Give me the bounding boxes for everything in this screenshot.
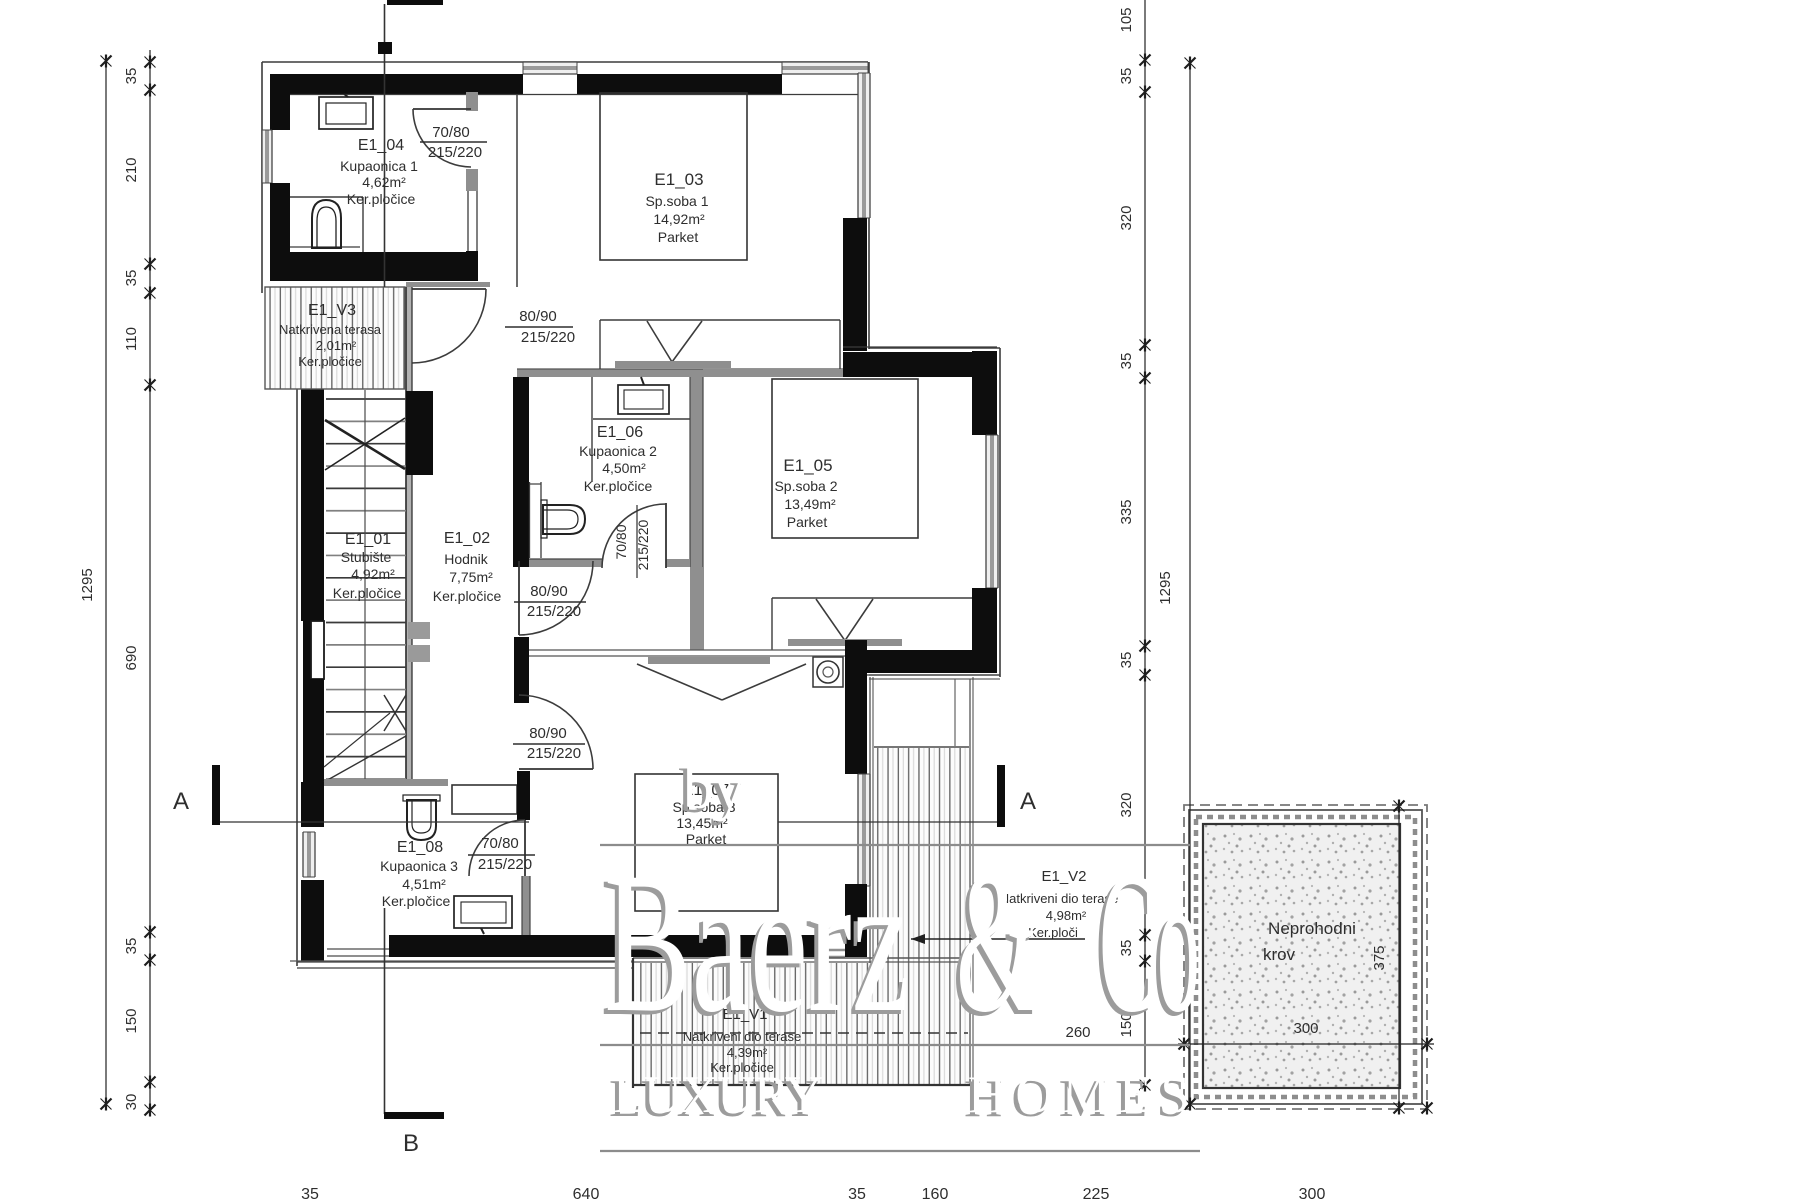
svg-text:E1_08: E1_08 [397, 839, 443, 856]
svg-text:215/220: 215/220 [478, 856, 532, 873]
svg-text:215/220: 215/220 [428, 144, 482, 161]
svg-text:A: A [1020, 788, 1036, 815]
svg-text:35: 35 [123, 270, 140, 287]
svg-text:215/220: 215/220 [635, 519, 651, 570]
svg-text:215/220: 215/220 [521, 329, 575, 346]
svg-text:35: 35 [123, 938, 140, 955]
svg-text:Ker.pločice: Ker.pločice [333, 585, 402, 601]
svg-text:215/220: 215/220 [527, 603, 581, 620]
svg-text:Stubište: Stubište [341, 549, 392, 565]
svg-text:E1_02: E1_02 [444, 530, 490, 547]
svg-text:80/90: 80/90 [519, 308, 557, 325]
svg-text:krov: krov [1263, 945, 1296, 964]
svg-text:35: 35 [1118, 68, 1135, 85]
svg-text:35: 35 [1118, 353, 1135, 370]
svg-text:375: 375 [1371, 945, 1388, 970]
svg-text:4,51m²: 4,51m² [402, 876, 446, 892]
svg-text:300: 300 [1299, 1186, 1326, 1200]
svg-text:E1_06: E1_06 [597, 424, 643, 441]
svg-text:7,75m²: 7,75m² [449, 569, 493, 585]
svg-text:Ker.pločice: Ker.pločice [298, 354, 362, 369]
svg-text:260: 260 [1065, 1024, 1090, 1041]
svg-text:4,50m²: 4,50m² [602, 460, 646, 476]
svg-text:110: 110 [123, 327, 140, 351]
svg-text:30: 30 [123, 1094, 140, 1111]
svg-text:13,49m²: 13,49m² [784, 496, 836, 512]
svg-text:E1_04: E1_04 [358, 137, 404, 154]
svg-text:70/80: 70/80 [481, 835, 519, 852]
svg-text:Kupaonica 3: Kupaonica 3 [380, 858, 458, 874]
svg-text:35: 35 [848, 1186, 866, 1200]
svg-text:by: by [683, 754, 745, 822]
svg-text:210: 210 [123, 157, 140, 182]
svg-text:Sp.soba 2: Sp.soba 2 [774, 478, 837, 494]
svg-text:Ker.pločice: Ker.pločice [347, 191, 416, 207]
svg-text:Sp.soba 1: Sp.soba 1 [645, 193, 708, 209]
svg-text:E1_01: E1_01 [345, 531, 391, 548]
svg-text:Ker.pločice: Ker.pločice [382, 893, 451, 909]
svg-text:Hodnik: Hodnik [444, 551, 489, 567]
svg-text:80/90: 80/90 [529, 725, 567, 742]
svg-text:150: 150 [123, 1008, 140, 1033]
svg-text:300: 300 [1293, 1020, 1318, 1037]
svg-text:E1_V3: E1_V3 [308, 302, 356, 319]
svg-text:2,01m²: 2,01m² [316, 338, 357, 353]
svg-text:Kupaonica 1: Kupaonica 1 [340, 158, 418, 174]
svg-text:35: 35 [123, 68, 140, 85]
svg-text:690: 690 [123, 645, 140, 670]
svg-text:Parket: Parket [658, 229, 699, 245]
svg-text:70/80: 70/80 [432, 124, 470, 141]
svg-text:&: & [956, 830, 1038, 1054]
svg-text:Parket: Parket [787, 514, 828, 530]
svg-text:4,98m²: 4,98m² [1046, 908, 1087, 923]
svg-text:Co: Co [1099, 830, 1200, 1054]
svg-text:Baerz: Baerz [604, 830, 910, 1054]
svg-text:80/90: 80/90 [530, 583, 568, 600]
svg-text:Ker.pločice: Ker.pločice [433, 588, 502, 604]
svg-text:Ker.pločice: Ker.pločice [584, 478, 653, 494]
svg-text:E1_V2: E1_V2 [1041, 868, 1086, 885]
svg-text:335: 335 [1118, 499, 1135, 524]
svg-text:70/80: 70/80 [613, 524, 629, 559]
svg-text:320: 320 [1118, 792, 1135, 817]
svg-text:4,92m²: 4,92m² [351, 566, 395, 582]
svg-text:215/220: 215/220 [527, 745, 581, 762]
svg-text:E1_05: E1_05 [783, 456, 832, 475]
svg-text:105: 105 [1118, 7, 1135, 32]
svg-text:640: 640 [573, 1186, 600, 1200]
svg-text:B: B [403, 1130, 419, 1157]
svg-text:Kupaonica 2: Kupaonica 2 [579, 443, 657, 459]
svg-text:LUXURY: LUXURY [613, 1066, 823, 1124]
svg-text:A: A [173, 788, 189, 815]
svg-text:225: 225 [1083, 1186, 1110, 1200]
svg-text:35: 35 [301, 1186, 319, 1200]
svg-text:320: 320 [1118, 205, 1135, 230]
svg-text:1295: 1295 [79, 568, 96, 601]
svg-text:35: 35 [1118, 652, 1135, 669]
svg-text:Neprohodni: Neprohodni [1268, 919, 1356, 938]
svg-text:Natkrivena terasa: Natkrivena terasa [279, 322, 382, 337]
svg-text:1295: 1295 [1157, 571, 1174, 604]
svg-text:160: 160 [922, 1186, 949, 1200]
svg-text:E1_03: E1_03 [654, 170, 703, 189]
svg-text:14,92m²: 14,92m² [653, 211, 705, 227]
